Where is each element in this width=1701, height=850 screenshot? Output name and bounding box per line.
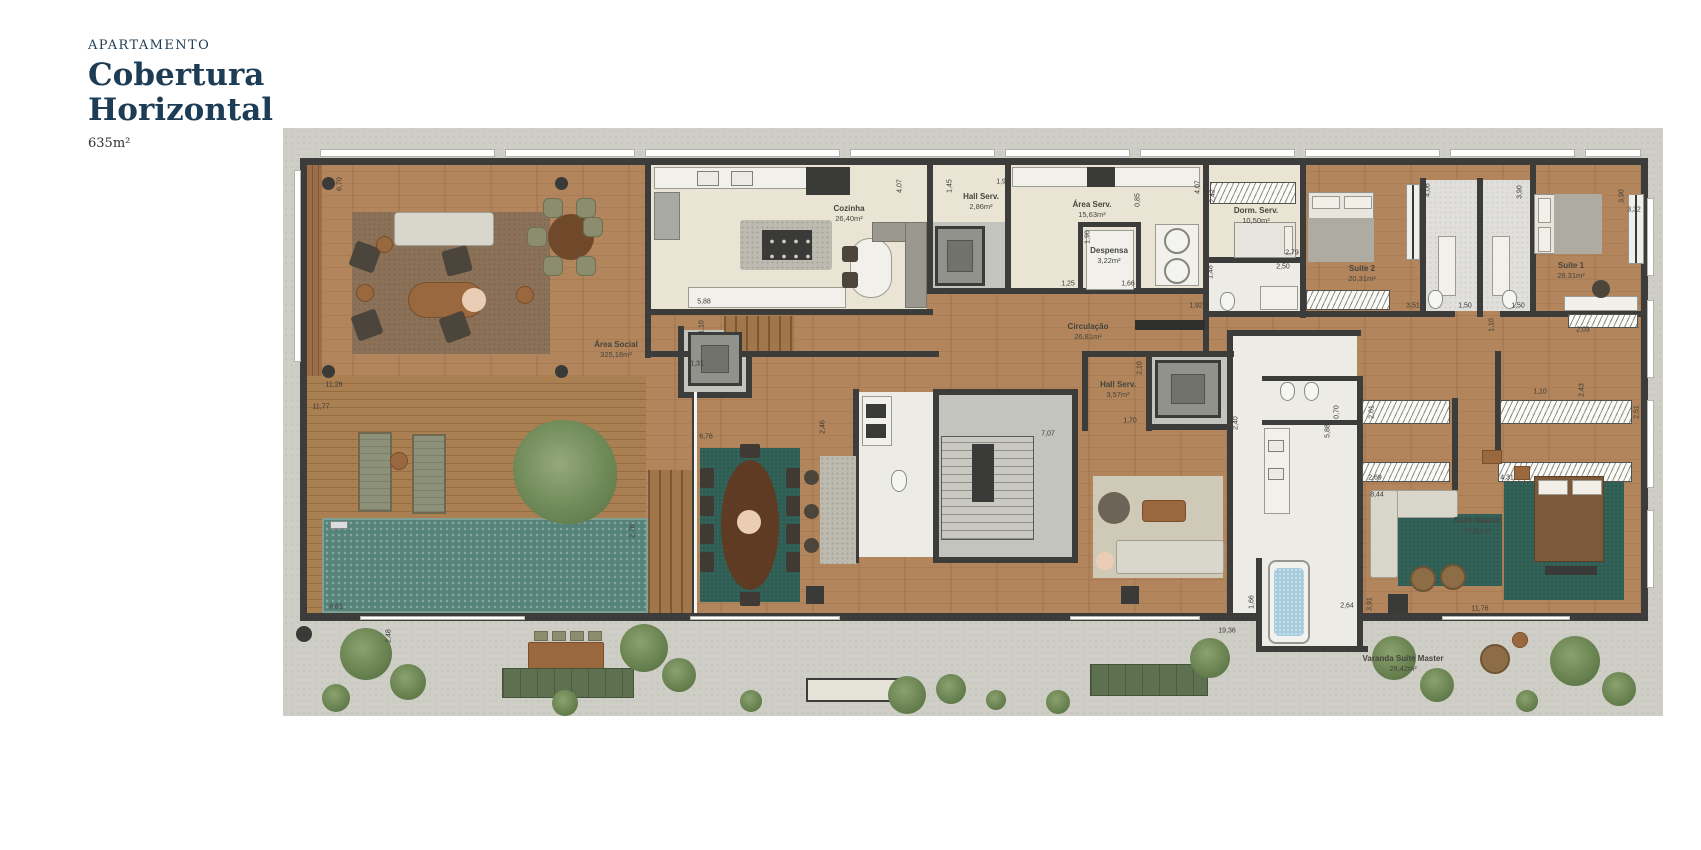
title-line-1: Cobertura [88,57,264,93]
pillow [1312,196,1340,209]
dim-label: 2,51 [1634,405,1641,419]
room-name: Circulação [1068,322,1109,332]
dim-label: 2,69 [1368,475,1382,482]
room-area: 325,18m² [594,350,638,360]
outdoor-chair [534,631,548,641]
room-label: Despensa3,22m² [1090,246,1128,266]
closet [1500,400,1632,424]
sink [1268,468,1284,480]
dim-label: 2,79 [1285,250,1299,257]
bush [1190,638,1230,678]
stair-core-wall [972,444,994,502]
room-label: Dorm. Serv.10,50m² [1234,206,1278,226]
toilet [1220,292,1235,311]
room-label: Cozinha26,40m² [833,204,864,224]
room-name: Despensa [1090,246,1128,256]
wall [1152,424,1229,430]
pillow [1538,198,1551,223]
pillow [1572,480,1602,495]
pool [322,518,648,613]
wall [933,389,939,563]
win [505,149,635,157]
wall [927,158,933,294]
wall [1227,330,1361,336]
desk-chair [1592,280,1610,298]
bush [552,690,578,716]
dining-chair [740,592,760,606]
wall [933,389,1078,395]
win [1070,616,1200,620]
wicker-chair [1440,564,1466,590]
win [1647,198,1654,276]
win [320,149,495,157]
toilet [1280,382,1295,401]
win [1647,400,1654,488]
win [690,616,840,620]
side-table [516,286,534,304]
page-title: Cobertura Horizontal [88,58,273,127]
toilet [1428,290,1443,309]
chair [527,227,547,247]
wall [1136,222,1141,292]
dim-label: 2,70 [630,524,637,538]
blanket [1308,218,1374,262]
wall [933,557,1078,563]
timber-wall-strip [306,164,322,376]
pillow [1538,227,1551,252]
win [1442,616,1570,620]
bush [936,674,966,704]
bush [390,664,426,700]
dim-label: 5,88 [1325,424,1332,438]
elevator-car [1171,374,1205,404]
vanity [1492,236,1510,296]
wall [1262,376,1357,381]
room-area: 15,63m² [1073,210,1112,220]
room-label: Suíte 128,31m² [1557,261,1585,281]
blanket [1554,194,1602,254]
bush [620,624,668,672]
cooktop [762,230,812,260]
wall [1256,646,1368,652]
room-name: Varanda Suíte Master [1363,654,1444,664]
dim-label: 0,70 [1334,405,1341,419]
deck-steps [648,470,693,616]
wall [1477,178,1483,317]
room-area: 2,86m² [963,202,999,212]
room-area: 20,31m² [1348,274,1376,284]
washer [1164,228,1190,254]
wall [1203,311,1455,317]
wall [678,392,752,398]
sun-lounger [412,434,446,514]
bush [1516,690,1538,712]
master-sofa [1370,490,1398,578]
tv-stand [1482,450,1502,464]
range [806,167,850,195]
chair [543,198,563,218]
planter [296,626,312,642]
room-name: Hall Serv. [963,192,999,202]
bidet [1304,382,1319,401]
dim-label: 1,25 [1061,281,1075,288]
dim-label: 5,88 [697,299,711,306]
dim-label: 19,36 [1218,628,1236,635]
side-table [1096,552,1114,570]
dim-label: 7,07 [1041,431,1055,438]
dim-label: 1,70 [1123,418,1137,425]
room-area: 3,22m² [1090,256,1128,266]
dining-chair [700,468,714,488]
win [1140,149,1295,157]
wall [1227,330,1233,616]
chair [576,198,596,218]
nightstand [1514,466,1530,480]
wall [1420,178,1426,317]
dim-label: 2,42 [1210,189,1217,203]
win [1647,510,1654,588]
outdoor-chair [570,631,584,641]
dim-label: 11,26 [326,382,343,389]
room-area: 70,61m² [1453,526,1501,536]
dining-chair [786,468,800,488]
wall [300,158,307,621]
stool [804,538,819,553]
dim-label: 9,61 [329,604,343,611]
bush [1550,636,1600,686]
armchair [1098,492,1130,524]
win [850,149,995,157]
room-name: Suíte 1 [1557,261,1585,271]
room-label: Área Serv.15,63m² [1073,200,1112,220]
dim-label: 6,76 [699,434,713,441]
tv-panel [1406,184,1420,260]
wicker-chair [1480,644,1510,674]
dim-label: 2,10 [1137,361,1144,375]
dim-label: 1,10 [699,320,706,334]
dim-label: 2,43 [1579,383,1586,397]
room-label: Hall Serv.2,86m² [963,192,999,212]
dim-label: 4,07 [1195,180,1202,194]
win [1647,300,1654,378]
room-area: 26,81m² [1068,332,1109,342]
dim-label: 3,90 [1619,189,1626,203]
dim-label: 1,48 [1208,265,1215,279]
dining-chair [740,444,760,458]
dim-label: 1,92 [1189,303,1203,310]
room-name: Dorm. Serv. [1234,206,1278,216]
appliance [1087,167,1115,187]
side-table [1512,632,1528,648]
dim-label: 1,96 [996,179,1010,186]
wall [678,326,684,398]
wall [300,158,1648,165]
win [1305,149,1440,157]
room-label: Varanda Suíte Master28,42m² [1363,654,1444,674]
pillow [1538,480,1568,495]
wall [1078,222,1141,227]
side-table [376,236,393,253]
wall [1072,389,1078,563]
toilet [891,470,907,492]
dim-label: 11,77 [313,404,330,411]
dryer [1164,258,1190,284]
win [645,149,840,157]
win [1005,149,1130,157]
dim-label: 3,90 [1517,185,1524,199]
stool [804,504,819,519]
bar-counter [820,456,856,564]
dim-label: 11,76 [1472,606,1489,613]
oven [866,424,886,438]
room-name: Suíte Master [1453,516,1501,526]
dim-label: 1,66 [1249,595,1256,609]
wall [1262,420,1357,425]
planter [1388,594,1408,614]
pool-ladder [330,521,348,529]
chair [583,217,603,237]
wall [645,158,651,358]
wall [645,309,933,315]
column [322,365,335,378]
dim-label: 3,91 [1367,597,1374,611]
room-name: Área Serv. [1073,200,1112,210]
dining-chair [786,496,800,516]
wall [1452,398,1458,490]
dining-chair [786,524,800,544]
wall [1078,222,1083,292]
column [322,177,335,190]
kitchen-sink [731,171,753,186]
outdoor-chair [552,631,566,641]
chair [576,256,596,276]
stool [804,470,819,485]
wall [1082,351,1088,431]
column [555,365,568,378]
dim-label: 1,50 [1458,303,1472,310]
glass-wall [692,392,697,613]
dim-label: 4,06 [1425,183,1432,197]
room-label: Hall Serv.3,57m² [1100,380,1136,400]
pillow [1344,196,1372,209]
elevator-car [947,240,973,272]
dim-label: 2,61 [1369,405,1376,419]
wall [927,288,1209,294]
bush [740,690,762,712]
tv [1135,320,1205,330]
page: APARTAMENTO Cobertura Horizontal 635m² C… [0,0,1701,850]
dim-label: 1,50 [1511,303,1525,310]
dining-chair [700,524,714,544]
bush [1602,672,1636,706]
win [1450,149,1575,157]
column [806,586,824,604]
elevator-car [701,345,729,373]
desk [1564,296,1638,311]
room-label: Suíte 220,31m² [1348,264,1376,284]
dim-label: 2,03 [1576,327,1590,334]
dim-label: 1,31 [690,361,704,368]
dim-label: 0,85 [1135,193,1142,207]
win [1585,149,1641,157]
win [360,616,525,620]
dim-label: 1,66 [1121,281,1135,288]
dim-label: 2,64 [1340,603,1354,610]
closet [1210,182,1296,204]
closet [1306,290,1390,310]
kitchen-sink [697,171,719,186]
dining-chair [786,552,800,572]
room-name: Cozinha [833,204,864,214]
total-area: 635m² [88,136,273,151]
family-sofa [1116,540,1224,574]
shower [1260,286,1298,310]
coffee-table [1142,500,1186,522]
dim-label: 1,10 [1533,389,1547,396]
centerpiece [737,510,761,534]
room-area: 28,42m² [1363,664,1444,674]
kitchen-bench [905,222,927,308]
dim-label: 1,45 [947,179,954,193]
bush [888,676,926,714]
bed-bench [1545,566,1597,575]
wall [1146,351,1152,431]
room-label: Suíte Master70,61m² [1453,516,1501,536]
dim-label: 8,44 [1370,492,1384,499]
dim-label: 2,50 [1276,264,1290,271]
wall [1082,351,1234,357]
sink [1268,440,1284,452]
chair [543,256,563,276]
room-label: Área Social325,18m² [594,340,638,360]
bush [662,658,696,692]
dim-label: 2,46 [820,420,827,434]
title-line-2: Horizontal [88,92,273,128]
column [1121,586,1139,604]
room-name: Suíte 2 [1348,264,1376,274]
dim-label: 3,32 [1627,207,1641,214]
living-sofa [394,212,494,246]
dim-label: 2,48 [386,629,393,643]
kitchen-cabinet [688,287,846,308]
bath-water [1274,568,1304,636]
title-block: APARTAMENTO Cobertura Horizontal 635m² [88,38,273,151]
oven [866,404,886,418]
room-area: 3,57m² [1100,390,1136,400]
wall [1256,558,1262,652]
bush [986,690,1006,710]
outdoor-sofa [1090,664,1208,696]
dim-label: 6,70 [337,177,344,191]
win [294,170,301,362]
bush [1046,690,1070,714]
bush [340,628,392,680]
dim-label: 4,31 [1500,475,1514,482]
dim-label: 4,07 [897,179,904,193]
dim-label: 2,40 [1233,416,1240,430]
decor-bowl [462,288,486,312]
side-table [356,284,374,302]
side-table [390,452,408,470]
vanity [1438,236,1456,296]
room-area: 28,31m² [1557,271,1585,281]
chair [842,272,858,288]
room-area: 10,50m² [1234,216,1278,226]
chair [842,246,858,262]
sun-lounger [358,432,392,512]
room-name: Hall Serv. [1100,380,1136,390]
room-name: Área Social [594,340,638,350]
apartment-eyebrow: APARTAMENTO [88,38,273,53]
column [555,177,568,190]
dim-label: 3,51 [1406,303,1420,310]
room-label: Circulação26,81m² [1068,322,1109,342]
tv-panel [1628,194,1644,264]
dining-chair [700,552,714,572]
wicker-chair [1410,566,1436,592]
dim-label: 1,10 [1489,318,1496,332]
dim-label: 1,90 [1085,230,1092,244]
outdoor-chair [588,631,602,641]
dining-chair [700,496,714,516]
room-area: 26,40m² [833,214,864,224]
fridge [654,192,680,240]
bush [322,684,350,712]
